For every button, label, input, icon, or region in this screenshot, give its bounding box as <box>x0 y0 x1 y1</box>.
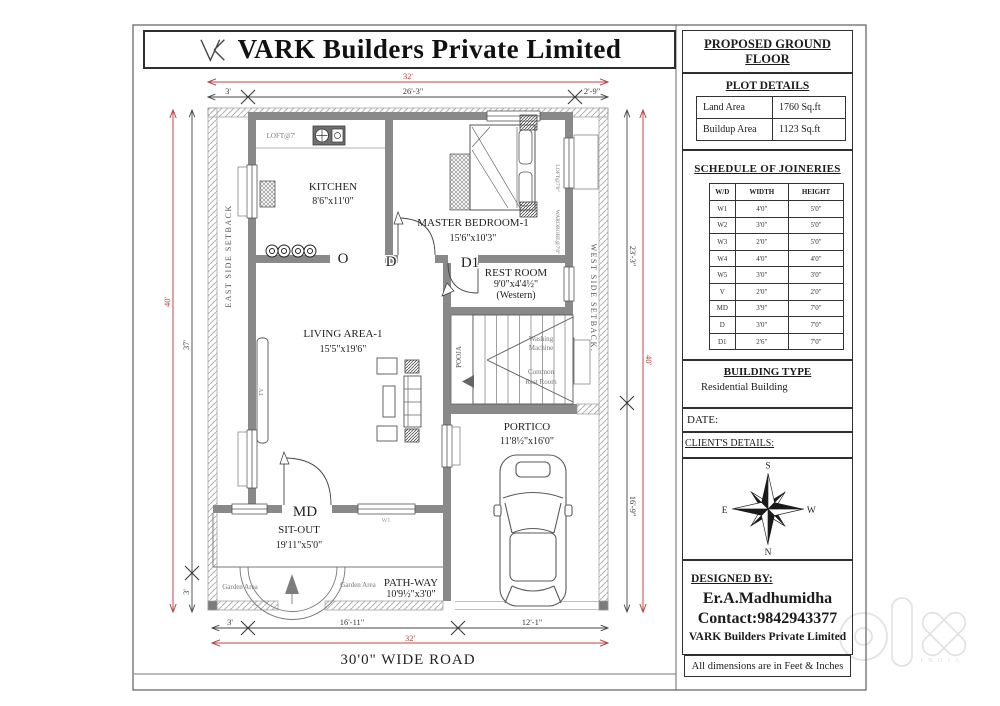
building-type-title: BUILDING TYPE <box>683 366 852 378</box>
car-mirror <box>565 505 572 516</box>
plot-details-title: PLOT DETAILS <box>683 80 852 92</box>
cell: 4'0" <box>735 250 789 267</box>
col-header: WIDTH <box>735 184 789 201</box>
room-label-sitout: SIT-OUT <box>278 524 320 536</box>
wardrobe-label: WARDROBE@7'0" <box>554 210 560 255</box>
cell: 4'0" <box>789 250 844 267</box>
bedroom-furniture <box>450 115 537 217</box>
client-details-label: CLIENT'S DETAILS: <box>685 438 774 449</box>
building-type-value: Residential Building <box>701 382 852 393</box>
client-details-section: CLIENT'S DETAILS: <box>682 432 853 458</box>
dim-left-overall: 40' <box>162 297 172 308</box>
cell: 3'0" <box>735 317 789 334</box>
car-icon <box>494 455 572 606</box>
designer-name: Er.A.Madhumidha <box>683 590 852 608</box>
room-size-sitout: 19'11"x5'0" <box>276 540 322 551</box>
compass-rose-icon: S N E W <box>698 460 838 558</box>
table-row: W23'0"5'0" <box>710 217 844 234</box>
table-row: W14'0"5'0" <box>710 201 844 218</box>
room-label-pathway: PATH-WAY <box>384 577 438 589</box>
date-section: DATE: <box>682 408 853 432</box>
loft-label: LOFT@7' <box>267 132 296 140</box>
room-size-portico: 11'8½"x16'0" <box>500 436 554 447</box>
cell: W2 <box>710 217 736 234</box>
dim-right-1: 23'-3" <box>628 246 638 267</box>
corner-table-icon <box>405 360 419 373</box>
west-setback-label: WEST SIDE SETBACK. <box>589 244 598 353</box>
cell: 3'0" <box>735 217 789 234</box>
plot-details-table: Land Area 1760 Sq.ft Buildup Area 1123 S… <box>696 96 846 141</box>
dim-bottom-overall: 32' <box>405 633 416 643</box>
drawing-title: PROPOSED GROUND FLOOR <box>683 37 852 67</box>
designed-by-section: DESIGNED BY: Er.A.Madhumidha Contact:984… <box>682 560 853 655</box>
dimensions-note-box: All dimensions are in Feet & Inches <box>684 655 851 677</box>
plot-details-section: PLOT DETAILS Land Area 1760 Sq.ft Buildu… <box>682 73 853 150</box>
cell: W4 <box>710 250 736 267</box>
compass-section: S N E W <box>682 458 853 560</box>
corner-table-icon <box>405 429 419 442</box>
table-row: W/D WIDTH HEIGHT <box>710 184 844 201</box>
door-label-d: D <box>386 254 397 270</box>
dim-right-overall: 40' <box>644 355 654 366</box>
joineries-title: SCHEDULE OF JOINERIES <box>683 163 852 175</box>
cell: 2'0" <box>789 283 844 300</box>
common-restroom-label: Common <box>528 368 555 376</box>
sink-icon <box>260 181 275 207</box>
cell: 3'9" <box>735 300 789 317</box>
room-size-pathway: 10'9½"x3'0" <box>386 589 435 600</box>
col-header: HEIGHT <box>789 184 844 201</box>
room-size-restroom: 9'0"x4'4½" <box>494 279 538 290</box>
cell: Buildup Area <box>697 119 773 141</box>
compass-top-label: S <box>765 461 770 471</box>
dim-left-2: 3' <box>181 589 191 595</box>
col-header: W/D <box>710 184 736 201</box>
cell: 7'0" <box>789 300 844 317</box>
car-mirror <box>494 505 501 516</box>
dim-top-2: 26'-3" <box>403 86 424 96</box>
pooja-label: POOJA <box>455 346 463 368</box>
cell: W3 <box>710 234 736 251</box>
table-row: Land Area 1760 Sq.ft <box>697 97 846 119</box>
side-table-icon <box>520 115 537 130</box>
compass-right-label: W <box>806 506 815 516</box>
cell: Land Area <box>697 97 773 119</box>
table-row: D3'0"7'0" <box>710 317 844 334</box>
svg-text:Machine: Machine <box>529 344 554 352</box>
designed-by-label: DESIGNED BY: <box>691 573 773 585</box>
info-panel: PROPOSED GROUND FLOOR PLOT DETAILS Land … <box>682 30 853 683</box>
dim-left-1: 37' <box>181 340 191 351</box>
garden-area-label: Garden Area <box>222 583 258 591</box>
cell: 7'0" <box>789 333 844 350</box>
sofa-icon <box>404 376 421 427</box>
cell: V <box>710 283 736 300</box>
cell: D <box>710 317 736 334</box>
cell: 5'0" <box>789 217 844 234</box>
table-row: MD3'9"7'0" <box>710 300 844 317</box>
cell: 4'0" <box>735 201 789 218</box>
building-type-section: BUILDING TYPE Residential Building <box>682 360 853 408</box>
opening-label-o: O <box>338 251 349 267</box>
panel-header-section: PROPOSED GROUND FLOOR <box>682 30 853 73</box>
room-size-bedroom: 15'6"x10'3" <box>450 233 497 244</box>
room-size-living: 15'5"x19'6" <box>320 344 367 355</box>
room-label-bedroom: MASTER BEDROOM-1 <box>417 217 529 229</box>
door-label-d1: D1 <box>461 255 479 271</box>
room-label-living: LIVING AREA-1 <box>303 328 382 340</box>
cell: 5'0" <box>789 234 844 251</box>
cell: 5'0" <box>789 201 844 218</box>
cell: 1760 Sq.ft <box>773 97 846 119</box>
joineries-table: W/D WIDTH HEIGHT W14'0"5'0" W23'0"5'0" W… <box>709 183 844 350</box>
svg-text:Rest Room: Rest Room <box>525 378 557 386</box>
table-row: W53'0"3'0" <box>710 267 844 284</box>
armchair-icon <box>377 426 397 441</box>
title-block: VARK Builders Private Limited <box>143 30 676 69</box>
date-label: DATE: <box>687 414 718 426</box>
table-row: Buildup Area 1123 Sq.ft <box>697 119 846 141</box>
designer-company: VARK Builders Private Limited <box>683 631 852 643</box>
compass-left-label: E <box>721 506 727 516</box>
cell: 7'0" <box>789 317 844 334</box>
joineries-section: SCHEDULE OF JOINERIES W/D WIDTH HEIGHT W… <box>682 150 853 360</box>
cell: 3'0" <box>789 267 844 284</box>
east-setback-label: EAST SIDE SETBACK <box>224 204 233 308</box>
dim-top-1: 3' <box>225 86 231 96</box>
compass-bottom-label: N <box>764 548 771 558</box>
staircase <box>451 315 573 404</box>
dim-bottom-3: 12'-1" <box>522 617 543 627</box>
room-size-kitchen: 8'6"x11'0" <box>312 196 353 207</box>
cell: 2'0" <box>735 234 789 251</box>
table-row: V2'0"2'0" <box>710 283 844 300</box>
table-row: D12'6"7'0" <box>710 333 844 350</box>
dim-bottom-1: 3' <box>227 617 233 627</box>
tv-label: TV <box>259 387 265 396</box>
cell: W1 <box>710 201 736 218</box>
window-label-w1: W1 <box>382 518 391 524</box>
vark-logo-icon <box>198 36 232 64</box>
dim-bottom-2: 16'-11" <box>340 617 365 627</box>
center-table-icon <box>383 386 395 417</box>
cell: D1 <box>710 333 736 350</box>
table-row: W32'0"5'0" <box>710 234 844 251</box>
dim-top-3: 2'-9" <box>584 86 600 96</box>
cell: 1123 Sq.ft <box>773 119 846 141</box>
cell: 3'0" <box>735 267 789 284</box>
room-note-restroom: (Western) <box>496 290 535 301</box>
room-label-portico: PORTICO <box>504 421 550 433</box>
entry-arrow-icon <box>285 574 299 594</box>
cell: 2'0" <box>735 283 789 300</box>
dimensions-note: All dimensions are in Feet & Inches <box>692 661 844 672</box>
cell: 2'6" <box>735 333 789 350</box>
designer-contact: Contact:9842943377 <box>683 610 852 628</box>
loft-wardrobe-label: LOFT@7'0" <box>554 164 560 192</box>
dim-right-2: 16'-9" <box>628 496 638 517</box>
door-label-md: MD <box>293 504 317 520</box>
cell: MD <box>710 300 736 317</box>
garden-area-label: Garden Area <box>340 581 376 589</box>
room-label-restroom: REST ROOM <box>485 267 548 279</box>
dim-top-overall: 32' <box>403 71 414 81</box>
table-row: W44'0"4'0" <box>710 250 844 267</box>
cell: W5 <box>710 267 736 284</box>
road-label: 30'0" WIDE ROAD <box>340 652 475 668</box>
side-table-icon <box>520 202 537 217</box>
armchair-icon <box>377 358 397 374</box>
room-label-kitchen: KITCHEN <box>309 181 357 193</box>
company-title: VARK Builders Private Limited <box>238 34 622 65</box>
washing-machine-label: Washing <box>529 335 554 343</box>
